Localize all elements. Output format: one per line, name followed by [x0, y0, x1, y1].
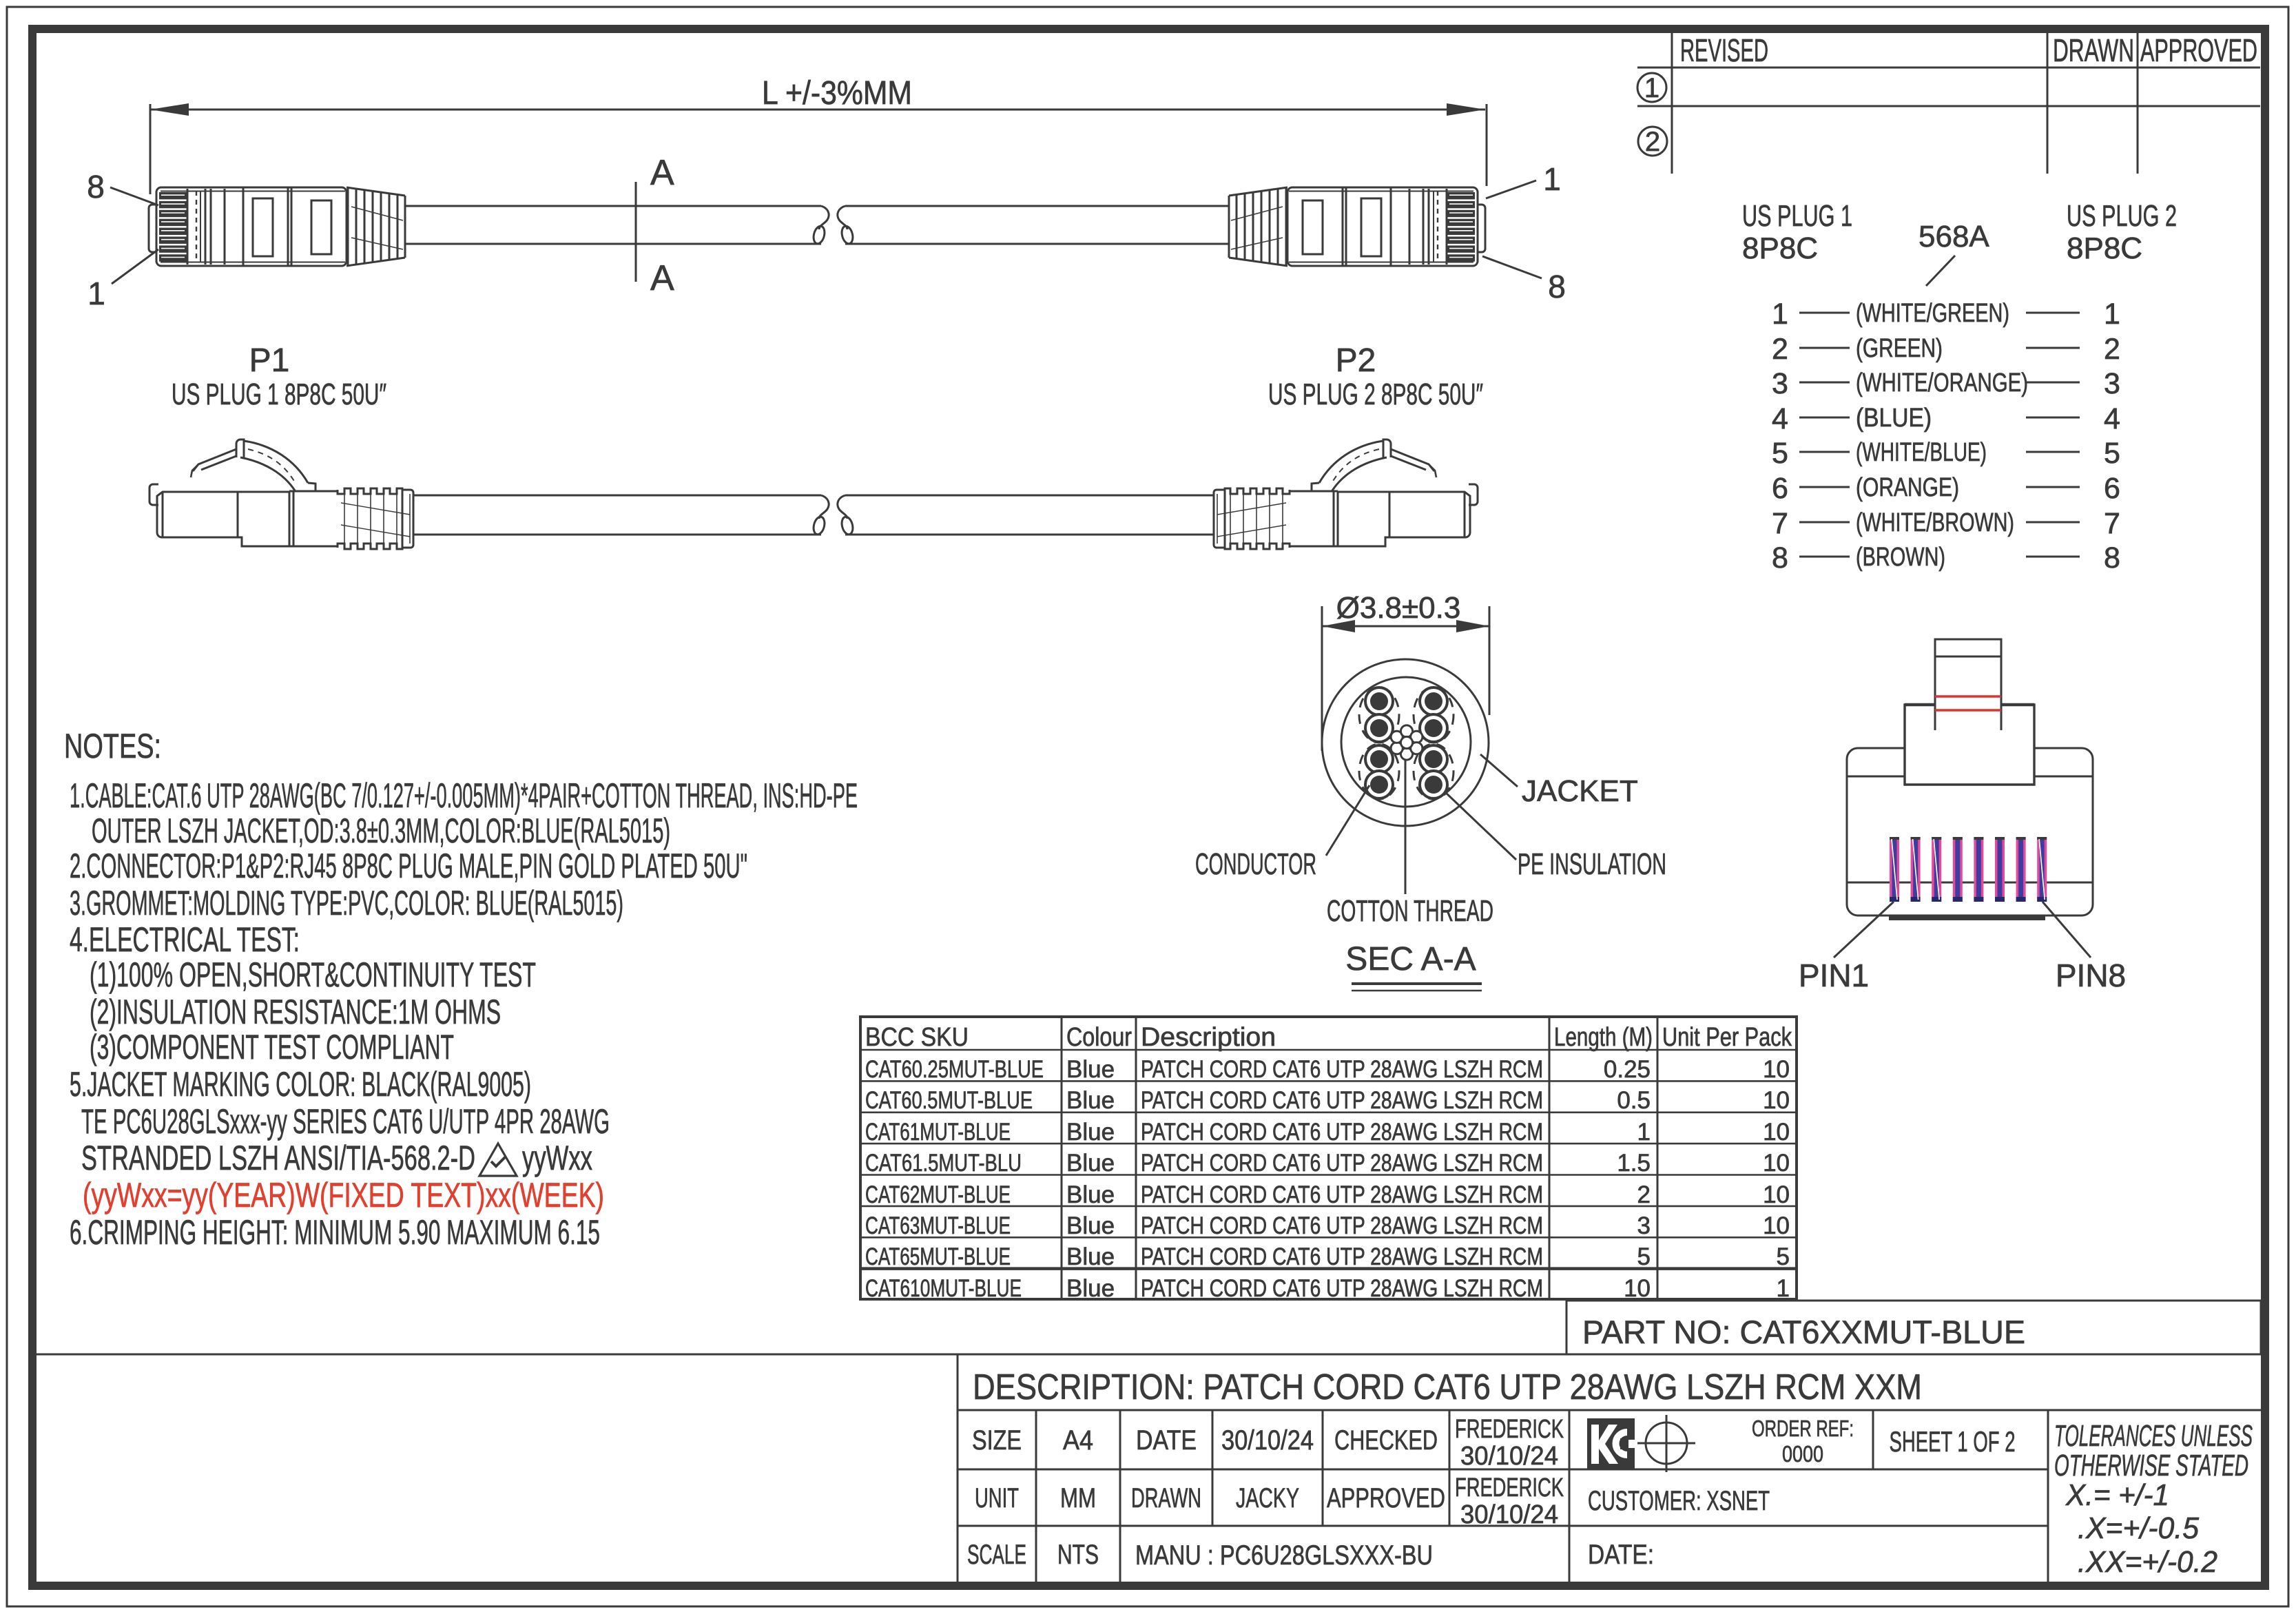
svg-text:US PLUG 2 8P8C 50U″: US PLUG 2 8P8C 50U″	[1268, 377, 1483, 411]
svg-text:JACKET: JACKET	[1522, 774, 1638, 808]
svg-text:6.CRIMPING HEIGHT: MINIMUM 5.9: 6.CRIMPING HEIGHT: MINIMUM 5.90 MAXIMUM …	[70, 1213, 600, 1252]
svg-text:(ORANGE): (ORANGE)	[1856, 473, 1959, 502]
svg-text:SIZE: SIZE	[972, 1425, 1022, 1456]
svg-text:(WHITE/GREEN): (WHITE/GREEN)	[1856, 299, 2009, 328]
svg-text:PART NO: CAT6XXMUT-BLUE: PART NO: CAT6XXMUT-BLUE	[1582, 1314, 2025, 1350]
svg-text:REVISED: REVISED	[1680, 32, 1768, 68]
svg-text:CAT60.5MUT-BLUE: CAT60.5MUT-BLUE	[865, 1087, 1033, 1114]
svg-text:5.JACKET MARKING COLOR: BLACK(: 5.JACKET MARKING COLOR: BLACK(RAL9005)	[70, 1065, 531, 1104]
svg-text:PIN1: PIN1	[1799, 958, 1869, 993]
svg-text:Length (M): Length (M)	[1554, 1023, 1653, 1052]
svg-text:Blue: Blue	[1066, 1056, 1115, 1083]
svg-text:8P8C: 8P8C	[2067, 231, 2142, 265]
svg-text:5: 5	[1777, 1243, 1790, 1270]
svg-text:PIN8: PIN8	[2056, 958, 2126, 993]
svg-text:PE INSULATION: PE INSULATION	[1518, 847, 1666, 881]
svg-text:30/10/24: 30/10/24	[1221, 1425, 1314, 1456]
svg-text:1.5: 1.5	[1617, 1150, 1651, 1177]
svg-text:Blue: Blue	[1066, 1150, 1115, 1177]
svg-text:6: 6	[2104, 472, 2120, 505]
svg-text:(yyWxx=yy(YEAR)W(FIXED TEXT)xx: (yyWxx=yy(YEAR)W(FIXED TEXT)xx(WEEK)	[83, 1176, 604, 1214]
svg-text:DATE: DATE	[1136, 1425, 1197, 1456]
svg-text:CAT63MUT-BLUE: CAT63MUT-BLUE	[865, 1212, 1011, 1239]
svg-text:.X=+/-0.5: .X=+/-0.5	[2078, 1511, 2200, 1545]
svg-text:0.25: 0.25	[1604, 1056, 1651, 1083]
svg-text:X.= +/-1: X.= +/-1	[2065, 1478, 2169, 1512]
svg-text:SHEET 1 OF 2: SHEET 1 OF 2	[1890, 1425, 2016, 1458]
svg-text:PATCH CORD CAT6 UTP 28AWG LSZH: PATCH CORD CAT6 UTP 28AWG LSZH RCM	[1141, 1087, 1543, 1114]
svg-text:1: 1	[1637, 1119, 1651, 1146]
svg-text:CUSTOMER: XSNET: CUSTOMER: XSNET	[1588, 1486, 1770, 1516]
svg-text:Blue: Blue	[1066, 1275, 1115, 1302]
svg-text:3: 3	[2104, 367, 2120, 400]
svg-text:5: 5	[1772, 437, 1788, 470]
svg-text:8: 8	[87, 169, 105, 205]
svg-text:(2)INSULATION RESISTANCE:1M OH: (2)INSULATION RESISTANCE:1M OHMS	[90, 993, 501, 1031]
svg-text:Description: Description	[1141, 1023, 1276, 1052]
svg-text:8: 8	[1772, 541, 1788, 575]
svg-text:(1)100% OPEN,SHORT&CONTINUITY: (1)100% OPEN,SHORT&CONTINUITY TEST	[90, 955, 536, 994]
svg-text:COTTON THREAD: COTTON THREAD	[1327, 894, 1493, 928]
svg-text:DRAWN: DRAWN	[2053, 32, 2134, 68]
svg-text:0000: 0000	[1782, 1441, 1823, 1467]
svg-text:PATCH CORD CAT6 UTP 28AWG LSZH: PATCH CORD CAT6 UTP 28AWG LSZH RCM	[1141, 1119, 1543, 1146]
svg-text:8: 8	[2104, 541, 2120, 575]
svg-text:PATCH CORD CAT6 UTP 28AWG LSZH: PATCH CORD CAT6 UTP 28AWG LSZH RCM	[1141, 1056, 1543, 1083]
svg-text:A: A	[650, 258, 674, 298]
svg-text:SEC A-A: SEC A-A	[1345, 941, 1476, 977]
svg-text:CAT65MUT-BLUE: CAT65MUT-BLUE	[865, 1243, 1011, 1270]
svg-text:4: 4	[2104, 402, 2120, 435]
svg-text:NOTES:: NOTES:	[64, 727, 161, 765]
svg-text:CHECKED: CHECKED	[1334, 1425, 1438, 1456]
svg-text:.XX=+/-0.2: .XX=+/-0.2	[2078, 1545, 2217, 1579]
svg-text:OTHERWISE STATED: OTHERWISE STATED	[2054, 1449, 2248, 1482]
svg-text:(WHITE/ORANGE): (WHITE/ORANGE)	[1856, 369, 2028, 397]
svg-text:568A: 568A	[1918, 220, 1989, 254]
svg-text:Blue: Blue	[1066, 1181, 1115, 1208]
svg-text:Blue: Blue	[1066, 1243, 1115, 1270]
svg-text:Blue: Blue	[1066, 1087, 1115, 1114]
svg-text:5: 5	[2104, 437, 2120, 470]
svg-text:PATCH CORD CAT6 UTP 28AWG LSZH: PATCH CORD CAT6 UTP 28AWG LSZH RCM	[1141, 1212, 1543, 1239]
svg-text:P2: P2	[1336, 342, 1376, 379]
svg-text:1: 1	[1777, 1275, 1790, 1302]
svg-text:8P8C: 8P8C	[1742, 231, 1818, 265]
svg-text:10: 10	[1763, 1150, 1790, 1177]
svg-text:UNIT: UNIT	[975, 1483, 1019, 1513]
svg-text:3: 3	[1772, 367, 1788, 400]
svg-text:CAT62MUT-BLUE: CAT62MUT-BLUE	[865, 1181, 1011, 1208]
svg-text:(WHITE/BROWN): (WHITE/BROWN)	[1856, 508, 2014, 537]
svg-text:US PLUG 1: US PLUG 1	[1742, 199, 1852, 233]
svg-text:NTS: NTS	[1057, 1540, 1099, 1570]
svg-text:3.GROMMET:MOLDING TYPE:PVC,COL: 3.GROMMET:MOLDING TYPE:PVC,COLOR: BLUE(R…	[70, 884, 623, 922]
svg-text:PATCH CORD CAT6 UTP 28AWG LSZH: PATCH CORD CAT6 UTP 28AWG LSZH RCM	[1141, 1275, 1543, 1302]
svg-text:6: 6	[1772, 472, 1788, 505]
svg-text:Ø3.8±0.3: Ø3.8±0.3	[1336, 591, 1461, 625]
svg-text:7: 7	[1772, 507, 1788, 540]
svg-text:10: 10	[1763, 1119, 1790, 1146]
svg-text:BCC SKU: BCC SKU	[865, 1023, 969, 1052]
svg-text:(WHITE/BLUE): (WHITE/BLUE)	[1856, 438, 1987, 467]
svg-text:1: 1	[87, 276, 105, 311]
svg-text:(BLUE): (BLUE)	[1856, 404, 1932, 433]
svg-text:8: 8	[1548, 269, 1566, 304]
svg-text:10: 10	[1624, 1275, 1651, 1302]
svg-text:10: 10	[1763, 1056, 1790, 1083]
svg-text:PATCH CORD CAT6 UTP 28AWG LSZH: PATCH CORD CAT6 UTP 28AWG LSZH RCM	[1141, 1181, 1543, 1208]
svg-text:APPROVED: APPROVED	[1327, 1483, 1445, 1513]
svg-text:DATE:: DATE:	[1588, 1540, 1654, 1570]
svg-text:L +/-3%MM: L +/-3%MM	[762, 75, 912, 112]
svg-text:4.ELECTRICAL TEST:: 4.ELECTRICAL TEST:	[70, 920, 300, 959]
svg-text:FREDERICK: FREDERICK	[1455, 1415, 1564, 1444]
svg-text:A4: A4	[1063, 1425, 1093, 1456]
svg-text:2.CONNECTOR:P1&P2:RJ45 8P8C PL: 2.CONNECTOR:P1&P2:RJ45 8P8C PLUG MALE,PI…	[70, 847, 747, 885]
svg-text:STRANDED LSZH ANSI/TIA-568.2-D: STRANDED LSZH ANSI/TIA-568.2-D	[81, 1139, 475, 1177]
svg-text:2: 2	[2104, 333, 2120, 366]
svg-text:10: 10	[1763, 1212, 1790, 1239]
svg-text:2: 2	[1645, 127, 1660, 157]
svg-text:yyWxx: yyWxx	[522, 1139, 592, 1177]
svg-text:DESCRIPTION: PATCH CORD CAT6 U: DESCRIPTION: PATCH CORD CAT6 UTP 28AWG L…	[973, 1367, 1922, 1407]
svg-text:US PLUG 1 8P8C 50U″: US PLUG 1 8P8C 50U″	[172, 377, 386, 411]
svg-text:1.CABLE:CAT.6 UTP 28AWG(BC 7/0: 1.CABLE:CAT.6 UTP 28AWG(BC 7/0.127+/-0.0…	[70, 776, 858, 815]
svg-text:2: 2	[1637, 1181, 1651, 1208]
svg-text:JACKY: JACKY	[1236, 1483, 1299, 1513]
svg-text:1: 1	[1543, 161, 1561, 197]
svg-text:2: 2	[1772, 333, 1788, 366]
svg-text:MANU : PC6U28GLSXXX-BU: MANU : PC6U28GLSXXX-BU	[1135, 1540, 1433, 1571]
svg-text:5: 5	[1637, 1243, 1651, 1270]
svg-text:TOLERANCES UNLESS: TOLERANCES UNLESS	[2054, 1419, 2253, 1453]
svg-text:PATCH CORD CAT6 UTP 28AWG LSZH: PATCH CORD CAT6 UTP 28AWG LSZH RCM	[1141, 1243, 1543, 1270]
svg-text:CAT610MUT-BLUE: CAT610MUT-BLUE	[865, 1275, 1022, 1302]
svg-text:US PLUG 2: US PLUG 2	[2067, 199, 2177, 233]
svg-text:PATCH CORD CAT6 UTP 28AWG LSZH: PATCH CORD CAT6 UTP 28AWG LSZH RCM	[1141, 1150, 1543, 1177]
svg-text:ORDER REF:: ORDER REF:	[1752, 1416, 1854, 1441]
svg-text:P1: P1	[249, 342, 290, 379]
svg-text:MM: MM	[1060, 1483, 1096, 1513]
svg-text:(BROWN): (BROWN)	[1856, 543, 1945, 572]
svg-text:OUTER LSZH JACKET,OD:3.8±0.3MM: OUTER LSZH JACKET,OD:3.8±0.3MM,COLOR:BLU…	[92, 811, 670, 850]
svg-text:CAT61MUT-BLUE: CAT61MUT-BLUE	[865, 1119, 1011, 1146]
svg-text:10: 10	[1763, 1087, 1790, 1114]
svg-text:(3)COMPONENT TEST COMPLIANT: (3)COMPONENT TEST COMPLIANT	[90, 1028, 454, 1066]
svg-text:(GREEN): (GREEN)	[1856, 334, 1943, 363]
svg-text:30/10/24: 30/10/24	[1460, 1500, 1558, 1529]
svg-text:Colour: Colour	[1066, 1023, 1132, 1052]
svg-text:10: 10	[1763, 1181, 1790, 1208]
svg-text:SCALE: SCALE	[967, 1540, 1026, 1570]
svg-text:0.5: 0.5	[1617, 1087, 1651, 1114]
svg-text:CAT60.25MUT-BLUE: CAT60.25MUT-BLUE	[865, 1056, 1044, 1083]
svg-text:Unit Per Pack: Unit Per Pack	[1662, 1023, 1792, 1052]
svg-text:30/10/24: 30/10/24	[1460, 1442, 1558, 1471]
svg-text:3: 3	[1637, 1212, 1651, 1239]
svg-text:CAT61.5MUT-BLU: CAT61.5MUT-BLU	[865, 1150, 1022, 1177]
svg-text:TE PC6U28GLSxxx-yy SERIES CAT6: TE PC6U28GLSxxx-yy SERIES CAT6 U/UTP 4PR…	[81, 1102, 610, 1141]
svg-text:CONDUCTOR: CONDUCTOR	[1195, 847, 1316, 881]
svg-text:1: 1	[1644, 73, 1659, 103]
svg-text:DRAWN: DRAWN	[1131, 1483, 1201, 1513]
svg-text:Blue: Blue	[1066, 1212, 1115, 1239]
svg-text:Blue: Blue	[1066, 1119, 1115, 1146]
svg-text:1: 1	[2104, 298, 2120, 331]
svg-text:APPROVED: APPROVED	[2140, 32, 2257, 68]
svg-text:4: 4	[1772, 402, 1788, 435]
svg-text:A: A	[650, 153, 674, 193]
svg-text:FREDERICK: FREDERICK	[1455, 1473, 1564, 1502]
svg-text:7: 7	[2104, 507, 2120, 540]
svg-text:1: 1	[1772, 298, 1788, 331]
